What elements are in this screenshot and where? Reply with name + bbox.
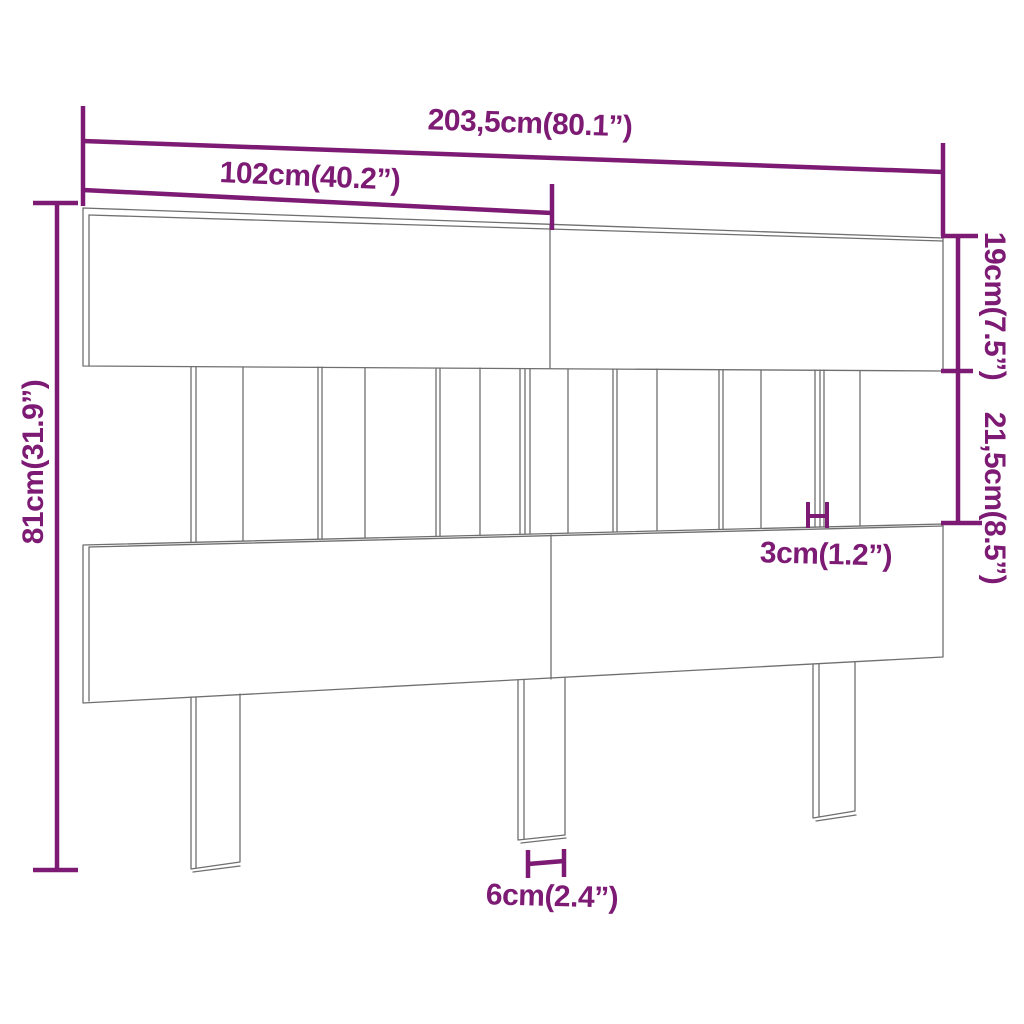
- leg-width-label: 6cm(2.4”): [486, 880, 619, 913]
- leg-width-dimension: [528, 849, 564, 878]
- left-leg: [191, 694, 240, 872]
- top-board: [83, 208, 943, 371]
- center-leg-outline: [518, 678, 565, 840]
- dimension-annotations: [33, 106, 982, 878]
- center-leg: [518, 678, 566, 843]
- slats: [191, 367, 860, 542]
- top-board-face: [83, 208, 943, 371]
- right-height-dimension: [941, 236, 982, 523]
- top-board-inner-top-edge: [89, 215, 943, 241]
- diagram-canvas: [0, 0, 1024, 1024]
- total-height-label: 81cm(31.9”): [19, 380, 49, 545]
- right-leg: [813, 662, 856, 821]
- top-board-height-label: 19cm(7.5”): [979, 232, 1009, 380]
- total-width-dimension-line: [83, 141, 943, 172]
- slat-section-height-label: 21,5cm(8.5”): [979, 412, 1009, 584]
- total-width-label: 203,5cm(80.1”): [427, 105, 633, 142]
- panel-width-dimension-line: [83, 190, 552, 213]
- headboard-dimension-diagram: 203,5cm(80.1”) 102cm(40.2”) 81cm(31.9”) …: [0, 0, 1024, 1024]
- leg-width-crossbar: [528, 861, 564, 864]
- left-leg-outline: [191, 694, 240, 869]
- panel-width-label: 102cm(40.2”): [219, 158, 401, 196]
- legs: [191, 662, 856, 872]
- slat-width-label: 3cm(1.2”): [760, 538, 893, 571]
- left-leg-foot-edge: [193, 866, 240, 872]
